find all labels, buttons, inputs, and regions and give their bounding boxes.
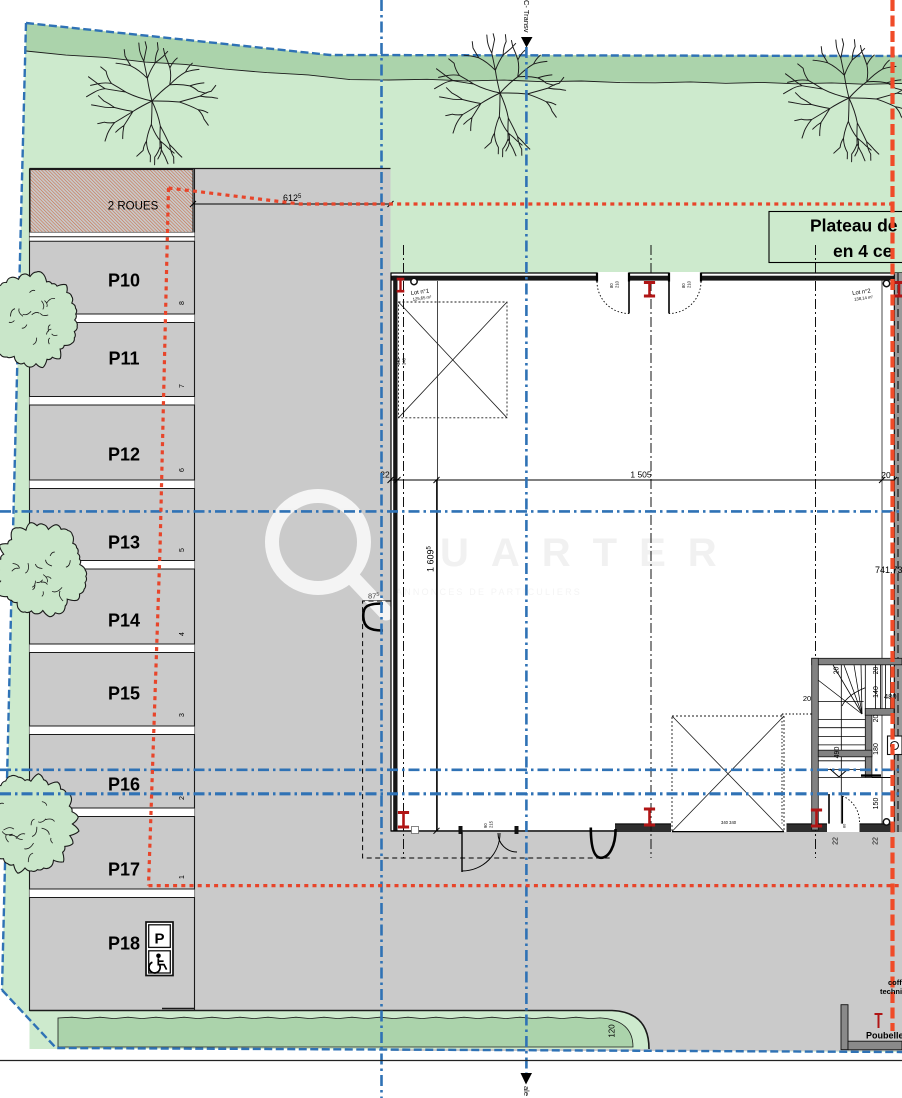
svg-text:Plateau de: Plateau de bbox=[810, 216, 898, 236]
svg-text:en 4 ce: en 4 ce bbox=[833, 241, 893, 261]
svg-text:20: 20 bbox=[873, 667, 880, 675]
svg-text:4: 4 bbox=[179, 632, 186, 636]
svg-text:210: 210 bbox=[687, 280, 692, 288]
svg-text:P: P bbox=[154, 931, 164, 948]
svg-text:P18: P18 bbox=[108, 934, 140, 954]
svg-text:5: 5 bbox=[179, 548, 186, 552]
svg-text:215: 215 bbox=[489, 820, 494, 828]
svg-text:UARTER: UARTER bbox=[440, 531, 739, 575]
svg-text:2: 2 bbox=[179, 796, 186, 800]
svg-text:22: 22 bbox=[833, 837, 840, 845]
svg-text:3: 3 bbox=[179, 713, 186, 717]
svg-text:90: 90 bbox=[483, 823, 488, 828]
svg-text:20: 20 bbox=[873, 715, 880, 723]
svg-text:490: 490 bbox=[834, 747, 841, 759]
svg-text:C- Transv: C- Transv bbox=[522, 0, 531, 33]
svg-text:P11: P11 bbox=[108, 349, 139, 369]
svg-text:140: 140 bbox=[873, 686, 880, 698]
svg-text:Poubelles: Poubelles bbox=[866, 1031, 902, 1041]
svg-text:coffret: coffret bbox=[888, 978, 902, 987]
svg-text:P16: P16 bbox=[108, 775, 140, 795]
svg-text:20: 20 bbox=[834, 667, 841, 675]
svg-text:20: 20 bbox=[881, 470, 891, 480]
svg-text:22: 22 bbox=[873, 837, 880, 845]
svg-text:P12: P12 bbox=[108, 445, 140, 465]
svg-text:80: 80 bbox=[609, 283, 614, 288]
svg-text:1 505: 1 505 bbox=[630, 470, 652, 480]
svg-text:480: 480 bbox=[884, 692, 897, 701]
svg-text:340: 340 bbox=[396, 357, 401, 365]
svg-text:210: 210 bbox=[615, 280, 620, 288]
svg-text:340: 340 bbox=[402, 357, 407, 365]
svg-text:P13: P13 bbox=[108, 533, 140, 553]
svg-text:P15: P15 bbox=[108, 684, 140, 704]
svg-text:P17: P17 bbox=[108, 860, 140, 880]
svg-text:150: 150 bbox=[873, 798, 880, 810]
svg-text:741,73: 741,73 bbox=[875, 565, 902, 575]
svg-text:180: 180 bbox=[873, 743, 880, 755]
svg-text:6: 6 bbox=[179, 468, 186, 472]
svg-text:ale: ale bbox=[522, 1086, 531, 1096]
svg-text:7: 7 bbox=[179, 384, 186, 388]
svg-text:P10: P10 bbox=[108, 271, 140, 291]
svg-text:ANNONCES DE PARTICULIERS: ANNONCES DE PARTICULIERS bbox=[396, 587, 582, 597]
svg-text:340 340: 340 340 bbox=[721, 820, 737, 825]
svg-text:2 ROUES: 2 ROUES bbox=[108, 201, 159, 213]
svg-text:8: 8 bbox=[179, 301, 186, 305]
svg-text:technique: technique bbox=[880, 987, 902, 996]
svg-text:20: 20 bbox=[803, 694, 811, 703]
svg-text:1: 1 bbox=[179, 875, 186, 879]
svg-text:120: 120 bbox=[608, 1024, 617, 1038]
svg-text:P14: P14 bbox=[108, 611, 140, 631]
svg-text:80: 80 bbox=[681, 283, 686, 288]
svg-text:80: 80 bbox=[843, 824, 847, 828]
